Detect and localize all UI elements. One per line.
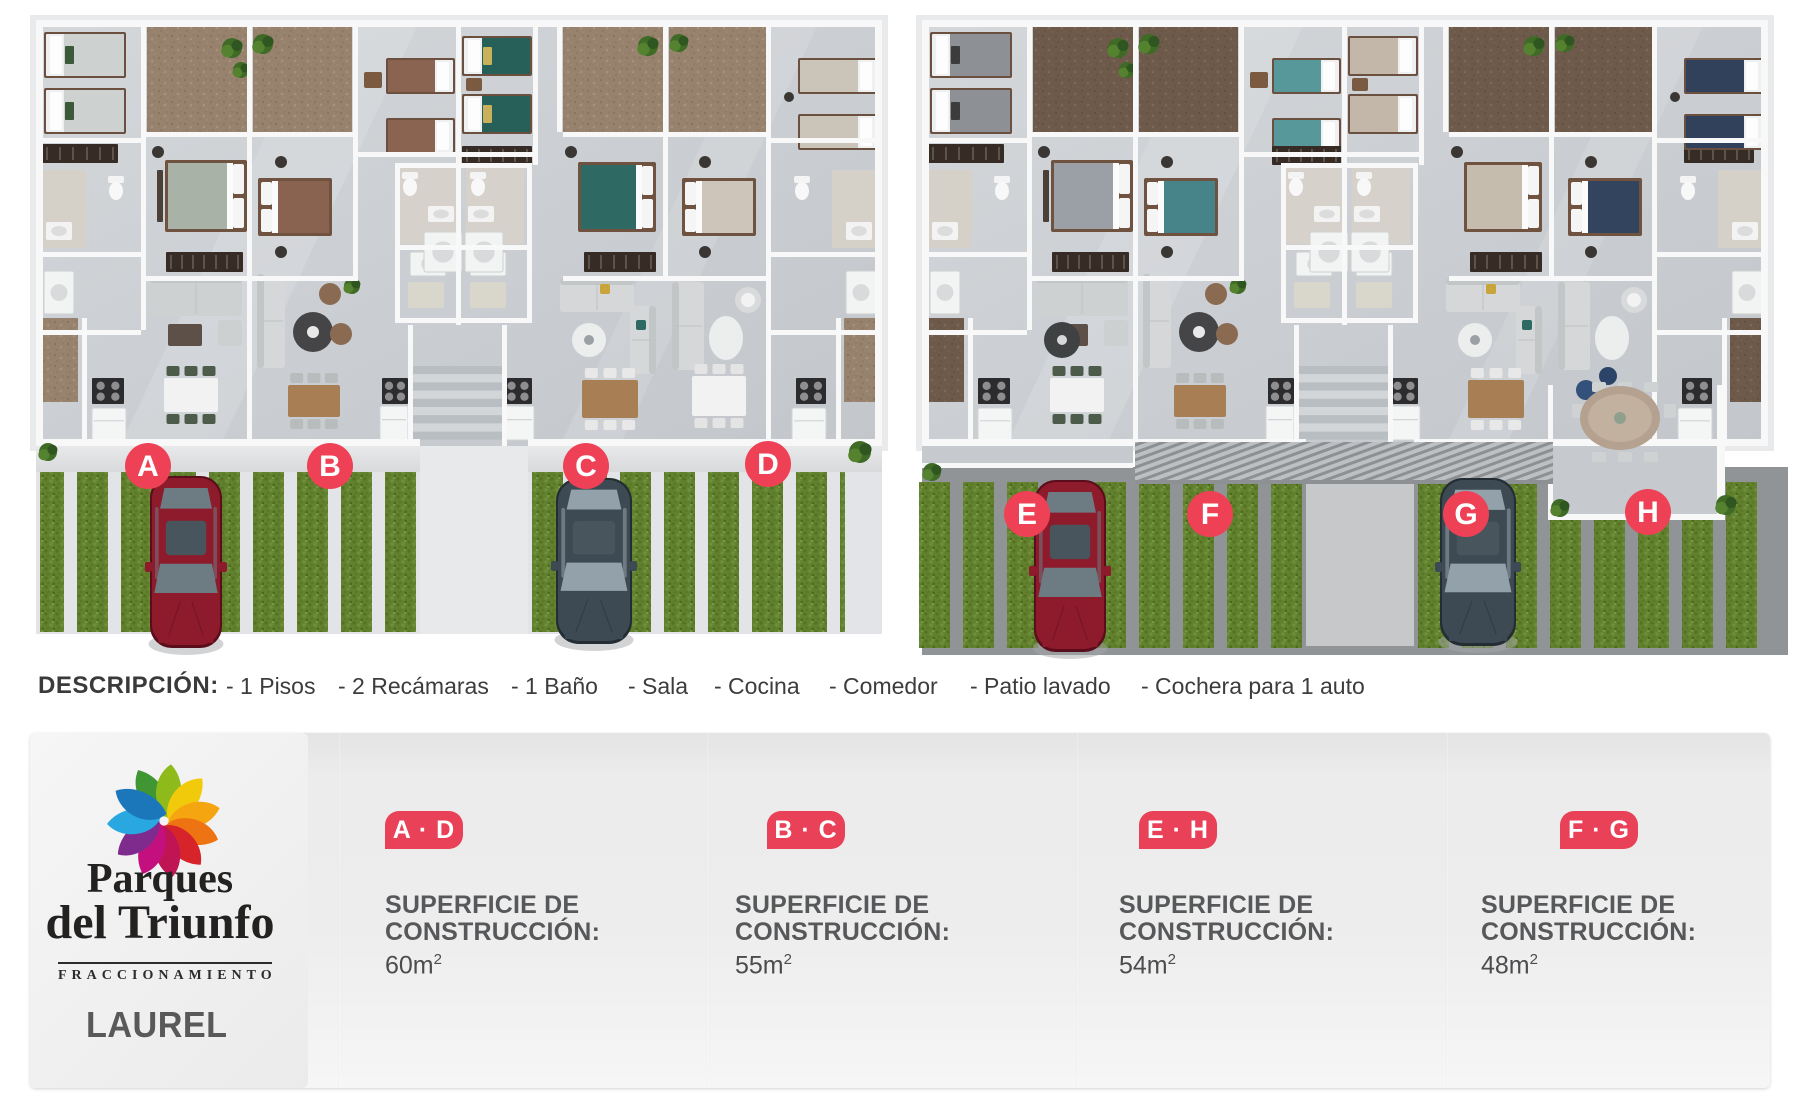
svg-text:A: A bbox=[137, 450, 159, 483]
svg-text:G: G bbox=[1454, 498, 1477, 531]
svg-text:F: F bbox=[1201, 498, 1219, 531]
svg-text:B: B bbox=[319, 450, 341, 483]
svg-text:D: D bbox=[757, 448, 779, 481]
svg-text:C: C bbox=[575, 450, 597, 483]
svg-text:E: E bbox=[1017, 498, 1037, 531]
svg-text:H: H bbox=[1637, 496, 1659, 529]
